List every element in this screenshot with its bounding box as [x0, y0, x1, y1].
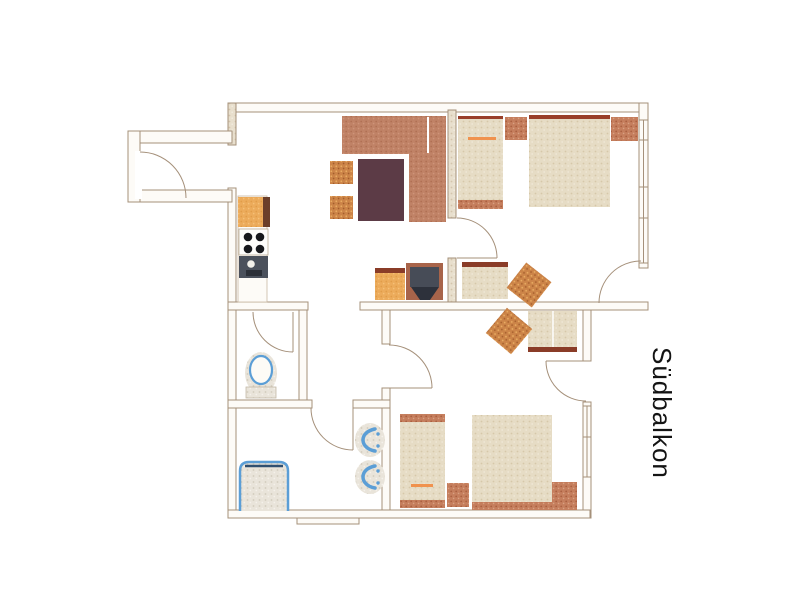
wall-bedroom1-west-lower [448, 258, 456, 303]
floorplan-drawing: Südbalkon [0, 0, 800, 600]
nightstand [505, 117, 527, 140]
desk-chair [486, 308, 532, 354]
wc-door-arc [253, 312, 293, 352]
double-bed-headline [529, 115, 610, 119]
wall-bottom-step [297, 518, 359, 524]
desk [462, 267, 508, 299]
single-bed [400, 422, 445, 500]
wall-hall-bottom [128, 190, 232, 202]
wc-room [245, 352, 277, 398]
washbasin-faucet [376, 481, 379, 484]
wall-bedroom2-west-upper [382, 310, 390, 344]
washbasin-faucet [376, 432, 379, 435]
desk-chair-seat [507, 263, 552, 308]
balcony-label: Südbalkon [647, 347, 677, 479]
single-bed-pillow-stripe [411, 484, 433, 487]
bedroom-1 [458, 115, 638, 307]
stove-burner [244, 233, 253, 242]
double-bed-headboard [472, 502, 577, 510]
wall-bath-top-west [228, 400, 312, 408]
wall-wc-east [299, 310, 307, 400]
entry-door-opening-cover [135, 151, 142, 199]
nightstand [447, 483, 469, 507]
desk-trim [462, 262, 508, 267]
double-bed [529, 119, 610, 207]
nightstand [611, 117, 638, 141]
dining-chair [330, 161, 353, 184]
single-bed-footboard [458, 200, 503, 209]
stove-burner [244, 245, 253, 254]
desk-chair [507, 263, 552, 308]
stove-burner [256, 245, 265, 254]
kitchen-sink-faucet [247, 260, 255, 268]
wall-mid-east [360, 302, 648, 310]
bedroom2-door-arc [389, 345, 432, 388]
single-bed [458, 119, 503, 207]
stove-burner [256, 233, 265, 242]
wall-mid-west [228, 302, 308, 310]
bedroom1-door-arc [457, 218, 497, 258]
wall-bath-top-east [353, 400, 390, 408]
living-room [330, 116, 446, 300]
dining-chair [330, 196, 353, 219]
bathtub-icon [240, 462, 288, 511]
tv-cabinet-trim [375, 268, 405, 273]
toilet-tank [246, 387, 276, 398]
desk-trim [528, 347, 577, 352]
washbasin-halo [355, 423, 385, 457]
single-bed-footboard [400, 500, 445, 508]
bathroom [240, 423, 385, 511]
kitchen-sink-basin [246, 270, 262, 276]
bath-door-arc [311, 408, 353, 450]
tv-body [410, 267, 439, 287]
single-bed-headboard [400, 414, 445, 422]
single-bed-pillow-stripe [468, 137, 496, 140]
tv-cabinet [375, 273, 405, 300]
double-bed [472, 415, 552, 502]
wall-hall-top [128, 131, 232, 143]
wall-bedroom1-west-upper [448, 110, 456, 218]
bedroom2-balcony-door-arc [546, 361, 586, 401]
washbasin-faucet [376, 469, 379, 472]
desk-chair-seat [486, 308, 532, 354]
kitchen-counter-top [238, 197, 264, 227]
dining-table [358, 159, 404, 221]
wall-top-exterior [228, 103, 648, 112]
wall-west-main [228, 188, 236, 510]
kitchen-counter-stripe [263, 197, 270, 227]
washbasin-halo [355, 460, 385, 494]
bedroom1-balcony-door-arc [599, 261, 641, 303]
single-bed-headline [458, 116, 503, 119]
wall-bottom-exterior [228, 510, 590, 518]
toilet-icon [250, 356, 272, 384]
floorplan-canvas: Südbalkon [0, 0, 800, 600]
bedroom-2 [400, 308, 577, 510]
washbasin-faucet [376, 444, 379, 447]
wall-east-bedroom2-upper [583, 303, 591, 361]
kitchen [238, 196, 270, 302]
nightstand [552, 482, 577, 502]
